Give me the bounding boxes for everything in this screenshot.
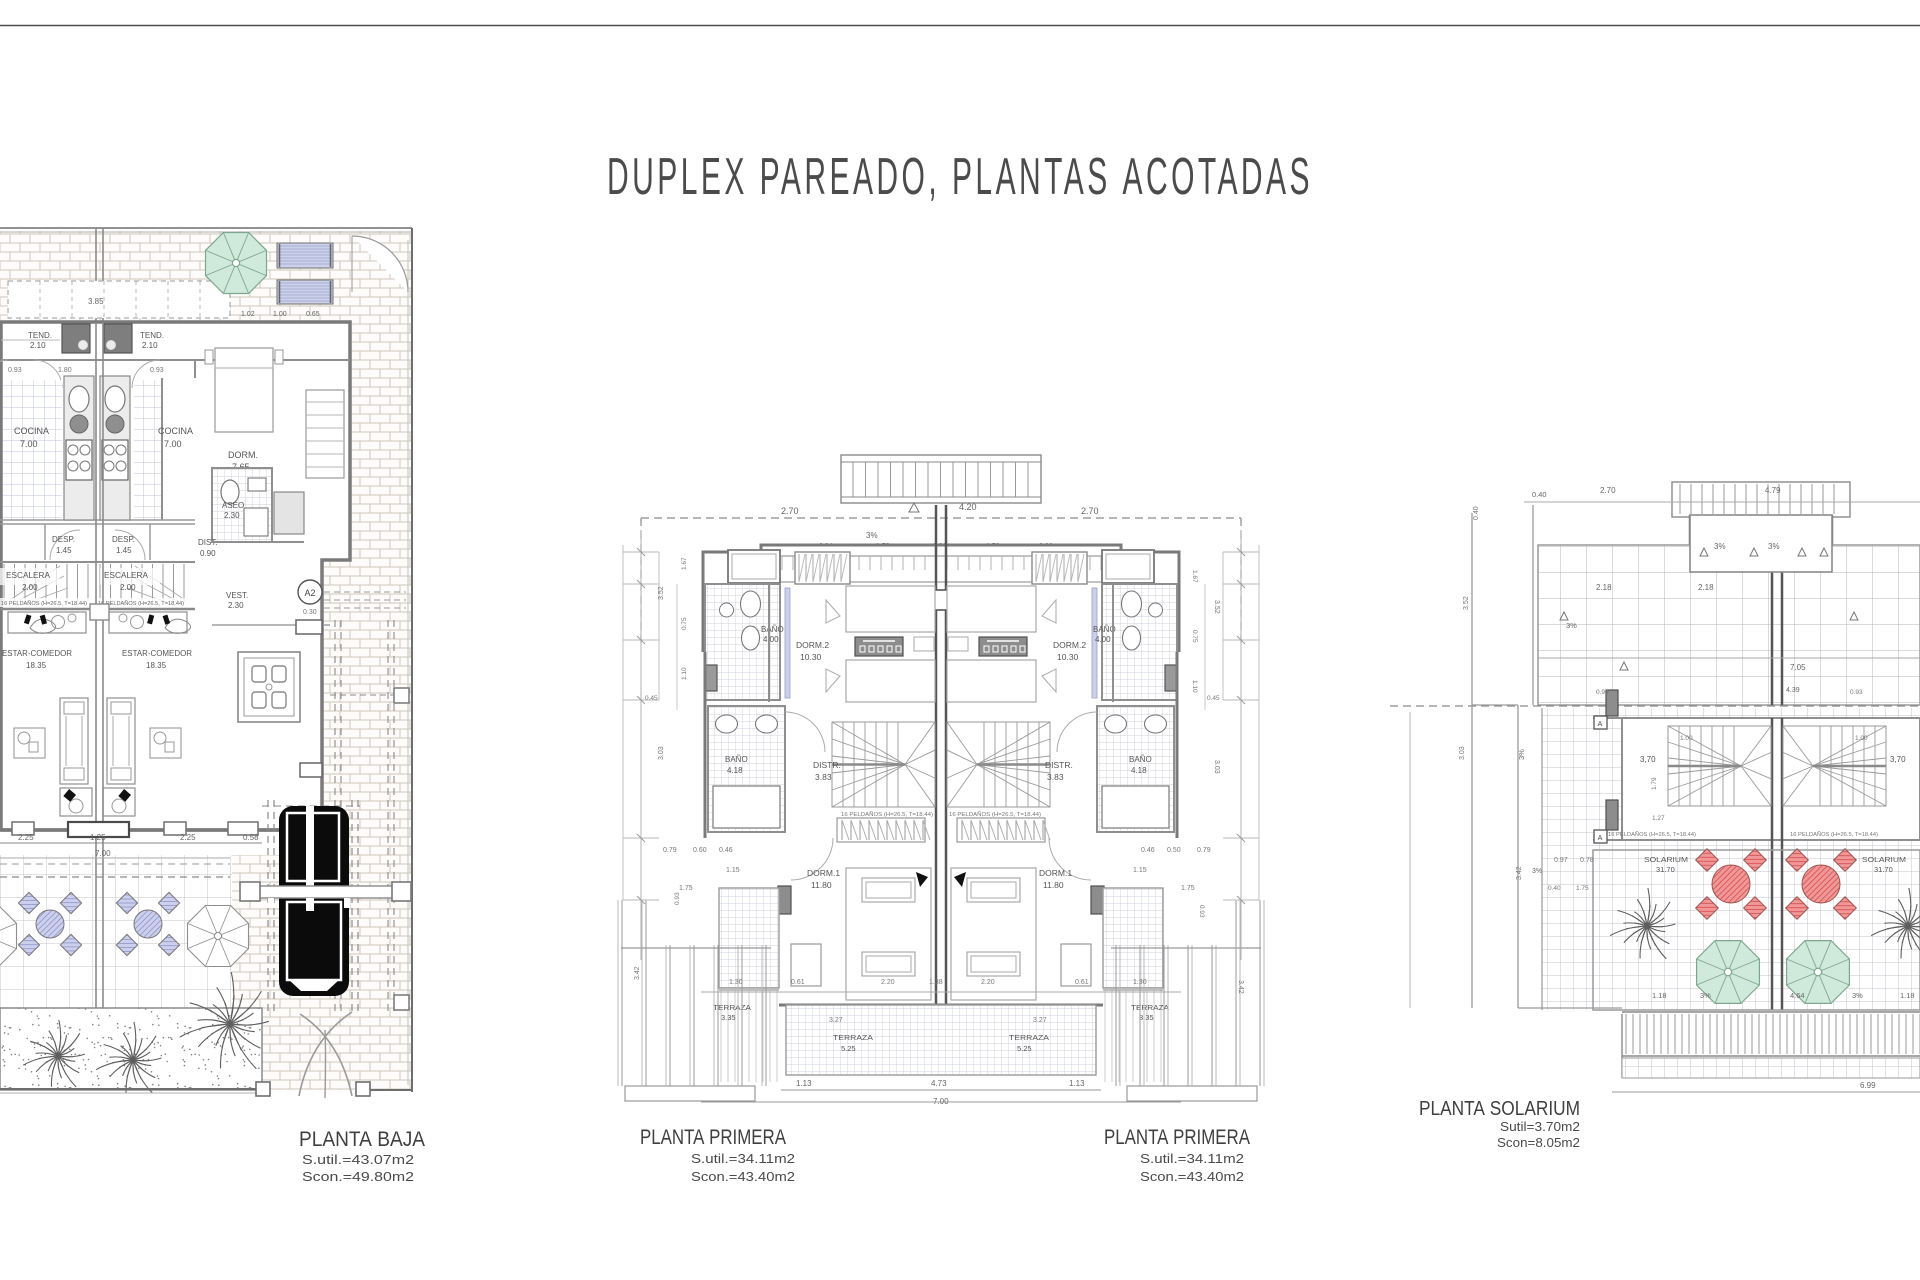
svg-text:7.00: 7.00 bbox=[20, 439, 38, 449]
svg-text:TERRAZA: TERRAZA bbox=[713, 1003, 751, 1012]
svg-text:0.93: 0.93 bbox=[1198, 905, 1205, 918]
svg-text:1.30: 1.30 bbox=[729, 979, 743, 986]
svg-text:0.79: 0.79 bbox=[663, 847, 677, 854]
svg-text:1.30: 1.30 bbox=[1133, 979, 1147, 986]
svg-text:3.42: 3.42 bbox=[1237, 980, 1244, 994]
svg-text:SOLARIUM: SOLARIUM bbox=[1644, 855, 1688, 864]
svg-text:7.05: 7.05 bbox=[1790, 663, 1806, 672]
svg-text:16 PELDAÑOS (H=26.5, T=18.44): 16 PELDAÑOS (H=26.5, T=18.44) bbox=[1608, 831, 1696, 838]
svg-text:DORM.2: DORM.2 bbox=[796, 640, 829, 650]
svg-text:2.30: 2.30 bbox=[224, 511, 240, 520]
svg-text:3,70: 3,70 bbox=[1640, 755, 1656, 764]
svg-text:COCINA: COCINA bbox=[14, 426, 49, 436]
svg-text:4.00: 4.00 bbox=[763, 635, 779, 644]
svg-text:6.99: 6.99 bbox=[1860, 1081, 1876, 1090]
svg-text:7.00: 7.00 bbox=[164, 439, 182, 449]
svg-text:DORM.2: DORM.2 bbox=[1053, 640, 1086, 650]
svg-text:PLANTA SOLARIUM: PLANTA SOLARIUM bbox=[1419, 1098, 1580, 1120]
svg-text:BAÑO: BAÑO bbox=[1129, 755, 1152, 764]
svg-text:2.20: 2.20 bbox=[881, 979, 895, 986]
svg-text:1.13: 1.13 bbox=[1069, 1079, 1085, 1088]
svg-text:4.79: 4.79 bbox=[1765, 486, 1781, 495]
svg-text:5.25: 5.25 bbox=[841, 1044, 856, 1053]
svg-text:1.25: 1.25 bbox=[90, 833, 106, 842]
svg-text:2.70: 2.70 bbox=[781, 506, 799, 516]
svg-text:0.75: 0.75 bbox=[681, 617, 688, 630]
svg-text:2.10: 2.10 bbox=[142, 341, 158, 350]
svg-text:0.46: 0.46 bbox=[1141, 847, 1155, 854]
svg-text:SOLARIUM: SOLARIUM bbox=[1862, 855, 1906, 864]
svg-text:0.93: 0.93 bbox=[8, 367, 22, 374]
svg-text:0.93: 0.93 bbox=[1850, 689, 1863, 696]
svg-text:5.25: 5.25 bbox=[1017, 1044, 1032, 1053]
svg-text:4.18: 4.18 bbox=[1131, 766, 1147, 775]
svg-text:TEND.: TEND. bbox=[140, 331, 164, 340]
svg-text:S.util.=34.11m2: S.util.=34.11m2 bbox=[1140, 1151, 1244, 1166]
svg-text:DISTR.: DISTR. bbox=[1045, 760, 1073, 770]
svg-text:2.25: 2.25 bbox=[18, 833, 34, 842]
svg-text:2.18: 2.18 bbox=[1596, 583, 1612, 592]
svg-text:BAÑO: BAÑO bbox=[725, 755, 748, 764]
svg-text:0.45: 0.45 bbox=[1207, 695, 1220, 702]
svg-text:TERRAZA: TERRAZA bbox=[1131, 1003, 1169, 1012]
svg-text:3%: 3% bbox=[866, 531, 878, 540]
svg-text:1.75: 1.75 bbox=[679, 885, 693, 892]
svg-text:0.30: 0.30 bbox=[303, 609, 317, 616]
svg-text:0.78: 0.78 bbox=[1580, 857, 1594, 864]
svg-text:Scon.=49.80m2: Scon.=49.80m2 bbox=[302, 1169, 414, 1184]
svg-text:0.58: 0.58 bbox=[243, 833, 259, 842]
svg-text:DESP.: DESP. bbox=[112, 535, 135, 544]
svg-text:3.52: 3.52 bbox=[1463, 596, 1470, 610]
svg-text:1.38: 1.38 bbox=[929, 979, 943, 986]
svg-text:1.13: 1.13 bbox=[796, 1079, 812, 1088]
svg-text:ESCALERA: ESCALERA bbox=[6, 571, 51, 580]
svg-text:1.02: 1.02 bbox=[241, 311, 255, 318]
svg-text:1.75: 1.75 bbox=[1181, 885, 1195, 892]
svg-text:2.25: 2.25 bbox=[180, 833, 196, 842]
svg-text:1.45: 1.45 bbox=[116, 546, 132, 555]
svg-text:3%: 3% bbox=[1700, 991, 1711, 1000]
svg-text:3.27: 3.27 bbox=[829, 1017, 843, 1024]
svg-text:1.80: 1.80 bbox=[58, 367, 72, 374]
svg-text:0.40: 0.40 bbox=[1532, 490, 1547, 499]
svg-text:2.70: 2.70 bbox=[1081, 506, 1099, 516]
svg-text:16 PELDAÑOS (H=26.5, T=18.44): 16 PELDAÑOS (H=26.5, T=18.44) bbox=[841, 811, 933, 818]
svg-text:3%: 3% bbox=[1714, 542, 1726, 551]
svg-text:2.70: 2.70 bbox=[1600, 486, 1616, 495]
svg-text:3.03: 3.03 bbox=[1213, 760, 1220, 774]
svg-text:0.61: 0.61 bbox=[1075, 979, 1089, 986]
svg-text:0.75: 0.75 bbox=[1191, 630, 1198, 643]
svg-text:1.18: 1.18 bbox=[1900, 991, 1915, 1000]
svg-text:3.83: 3.83 bbox=[815, 772, 832, 782]
svg-text:3.27: 3.27 bbox=[1033, 1017, 1047, 1024]
svg-text:1.00: 1.00 bbox=[273, 311, 287, 318]
svg-text:0.79: 0.79 bbox=[1197, 847, 1211, 854]
svg-text:S.util.=43.07m2: S.util.=43.07m2 bbox=[302, 1152, 414, 1167]
svg-text:0.61: 0.61 bbox=[791, 979, 805, 986]
svg-text:10.30: 10.30 bbox=[800, 652, 822, 662]
svg-text:1.27: 1.27 bbox=[1652, 815, 1665, 822]
svg-text:18.35: 18.35 bbox=[146, 661, 167, 670]
svg-text:Sutil=3.70m2: Sutil=3.70m2 bbox=[1500, 1120, 1580, 1134]
svg-text:1.10: 1.10 bbox=[681, 667, 688, 680]
svg-text:3.52: 3.52 bbox=[658, 586, 665, 600]
svg-text:TERRAZA: TERRAZA bbox=[1009, 1033, 1049, 1042]
svg-text:0.65: 0.65 bbox=[306, 311, 320, 318]
svg-text:31.70: 31.70 bbox=[1874, 865, 1893, 874]
svg-text:1.10: 1.10 bbox=[1191, 680, 1198, 693]
svg-text:16 PELDAÑOS (H=26.5, T=18.44): 16 PELDAÑOS (H=26.5, T=18.44) bbox=[949, 811, 1041, 818]
svg-text:16 PELDAÑOS (H=26.5, T=18.44): 16 PELDAÑOS (H=26.5, T=18.44) bbox=[98, 600, 184, 607]
svg-text:3%: 3% bbox=[1532, 868, 1542, 875]
svg-text:2.00: 2.00 bbox=[120, 583, 136, 592]
svg-text:1.18: 1.18 bbox=[1652, 991, 1667, 1000]
svg-text:S.util.=34.11m2: S.util.=34.11m2 bbox=[691, 1151, 795, 1166]
svg-text:1.00: 1.00 bbox=[1855, 735, 1868, 742]
svg-text:DUPLEX PAREADO, PLANTAS ACOTAD: DUPLEX PAREADO, PLANTAS ACOTADAS bbox=[607, 148, 1313, 206]
svg-text:Scon.=43.40m2: Scon.=43.40m2 bbox=[1140, 1169, 1244, 1184]
svg-text:11.80: 11.80 bbox=[1043, 880, 1064, 890]
svg-text:Scon=8.05m2: Scon=8.05m2 bbox=[1497, 1136, 1580, 1150]
svg-text:A: A bbox=[1598, 835, 1603, 842]
svg-text:0.97: 0.97 bbox=[1554, 857, 1568, 864]
svg-text:DORM.1: DORM.1 bbox=[1039, 868, 1072, 878]
svg-text:4.64: 4.64 bbox=[1790, 991, 1805, 1000]
svg-text:0.93: 0.93 bbox=[1596, 689, 1609, 696]
svg-text:3%: 3% bbox=[1852, 991, 1863, 1000]
svg-text:3.03: 3.03 bbox=[658, 746, 665, 760]
svg-text:DORM.: DORM. bbox=[228, 450, 258, 460]
svg-text:0.93: 0.93 bbox=[150, 367, 164, 374]
svg-text:18.35: 18.35 bbox=[26, 661, 47, 670]
svg-text:BAÑO: BAÑO bbox=[761, 625, 784, 634]
svg-text:2.20: 2.20 bbox=[981, 979, 995, 986]
svg-text:3.85: 3.85 bbox=[88, 297, 104, 306]
svg-text:3.35: 3.35 bbox=[721, 1013, 736, 1022]
svg-text:2.00: 2.00 bbox=[22, 583, 38, 592]
svg-text:1.15: 1.15 bbox=[726, 867, 740, 874]
svg-text:4.39: 4.39 bbox=[1786, 687, 1800, 694]
svg-text:4.73: 4.73 bbox=[931, 1079, 947, 1088]
svg-text:0.40: 0.40 bbox=[1473, 506, 1480, 520]
svg-text:PLANTA BAJA: PLANTA BAJA bbox=[299, 1128, 425, 1151]
svg-text:31.70: 31.70 bbox=[1656, 865, 1675, 874]
svg-text:16 PELDAÑOS (H=26.5, T=18.44): 16 PELDAÑOS (H=26.5, T=18.44) bbox=[1790, 831, 1878, 838]
svg-text:11.80: 11.80 bbox=[811, 880, 832, 890]
svg-text:3.42: 3.42 bbox=[1516, 866, 1523, 880]
svg-text:A2: A2 bbox=[304, 588, 315, 598]
svg-text:1.67: 1.67 bbox=[681, 557, 688, 570]
svg-text:ESTAR-COMEDOR: ESTAR-COMEDOR bbox=[122, 649, 192, 658]
svg-text:3%: 3% bbox=[1768, 542, 1780, 551]
svg-text:3.42: 3.42 bbox=[634, 966, 641, 980]
svg-text:2.30: 2.30 bbox=[228, 601, 244, 610]
svg-text:PLANTA PRIMERA: PLANTA PRIMERA bbox=[1104, 1126, 1250, 1149]
svg-text:3,70: 3,70 bbox=[1890, 755, 1906, 764]
svg-text:0.46: 0.46 bbox=[719, 847, 733, 854]
svg-text:3%: 3% bbox=[1517, 749, 1526, 760]
svg-text:10.30: 10.30 bbox=[1057, 652, 1079, 662]
svg-text:0.40: 0.40 bbox=[1548, 885, 1561, 892]
svg-text:VEST.: VEST. bbox=[226, 591, 248, 600]
svg-text:4.18: 4.18 bbox=[727, 766, 743, 775]
svg-text:ASEO: ASEO bbox=[222, 501, 244, 510]
svg-text:4.00: 4.00 bbox=[1095, 635, 1111, 644]
svg-text:Scon.=43.40m2: Scon.=43.40m2 bbox=[691, 1169, 795, 1184]
svg-text:16 PELDAÑOS (H=26.5, T=18.44): 16 PELDAÑOS (H=26.5, T=18.44) bbox=[1, 600, 87, 607]
svg-text:DORM.1: DORM.1 bbox=[807, 868, 840, 878]
svg-text:4.20: 4.20 bbox=[959, 502, 977, 512]
svg-text:0.93: 0.93 bbox=[674, 892, 681, 905]
svg-text:TEND.: TEND. bbox=[28, 331, 52, 340]
svg-text:1.00: 1.00 bbox=[1680, 735, 1693, 742]
svg-text:COCINA: COCINA bbox=[158, 426, 193, 436]
svg-text:0.90: 0.90 bbox=[200, 549, 216, 558]
svg-text:0.60: 0.60 bbox=[693, 847, 707, 854]
svg-text:DESP.: DESP. bbox=[52, 535, 75, 544]
svg-text:1.79: 1.79 bbox=[1651, 777, 1658, 790]
svg-text:A: A bbox=[1598, 721, 1603, 728]
svg-text:3%: 3% bbox=[1566, 621, 1577, 630]
svg-text:3.35: 3.35 bbox=[1139, 1013, 1154, 1022]
svg-text:0.50: 0.50 bbox=[1167, 847, 1181, 854]
svg-text:PLANTA PRIMERA: PLANTA PRIMERA bbox=[640, 1126, 786, 1149]
svg-text:7.00: 7.00 bbox=[95, 849, 111, 858]
svg-text:TERRAZA: TERRAZA bbox=[833, 1033, 873, 1042]
svg-text:2.18: 2.18 bbox=[1698, 583, 1714, 592]
svg-text:1.67: 1.67 bbox=[1191, 570, 1198, 583]
svg-text:ESTAR-COMEDOR: ESTAR-COMEDOR bbox=[2, 649, 72, 658]
svg-text:ESCALERA: ESCALERA bbox=[104, 571, 149, 580]
svg-text:1.15: 1.15 bbox=[1133, 867, 1147, 874]
svg-text:1.45: 1.45 bbox=[56, 546, 72, 555]
svg-text:0.45: 0.45 bbox=[645, 695, 658, 702]
svg-text:3.03: 3.03 bbox=[1459, 746, 1466, 760]
svg-text:3.83: 3.83 bbox=[1047, 772, 1064, 782]
svg-text:1.75: 1.75 bbox=[1576, 885, 1589, 892]
svg-text:DISTR.: DISTR. bbox=[813, 760, 841, 770]
svg-text:3.52: 3.52 bbox=[1213, 600, 1220, 614]
svg-text:2.10: 2.10 bbox=[30, 341, 46, 350]
